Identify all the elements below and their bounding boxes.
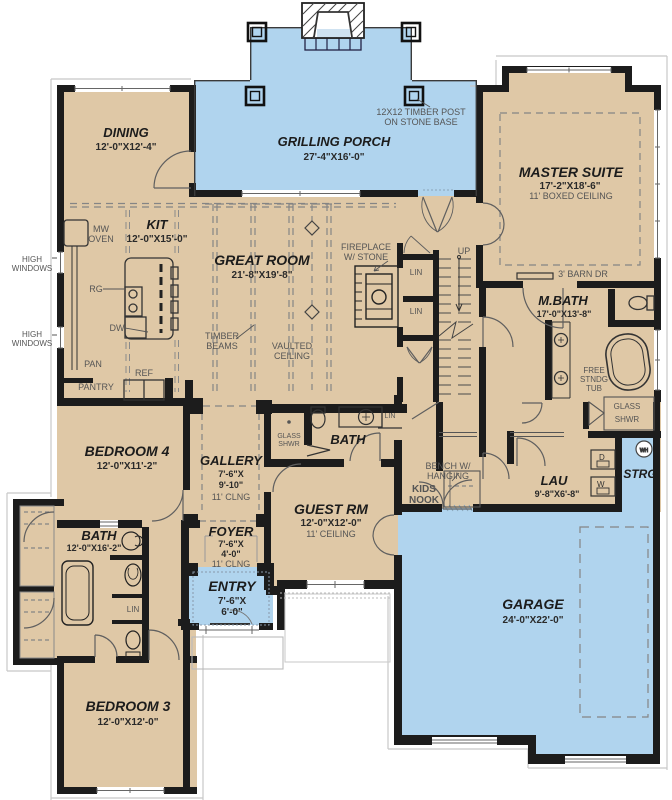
svg-text:GRILLING PORCH: GRILLING PORCH — [278, 134, 391, 149]
svg-text:17'-0"X13'-8": 17'-0"X13'-8" — [537, 309, 592, 319]
svg-text:DINING: DINING — [103, 125, 149, 140]
svg-text:ENTRY: ENTRY — [208, 578, 257, 594]
svg-text:3' BARN DR: 3' BARN DR — [558, 269, 608, 279]
svg-text:12'-0"X12'-0": 12'-0"X12'-0" — [301, 518, 362, 529]
svg-text:GARAGE: GARAGE — [502, 596, 564, 612]
svg-text:TIMBER: TIMBER — [205, 331, 240, 341]
svg-text:BATH: BATH — [81, 528, 117, 543]
svg-text:W/ STONE: W/ STONE — [344, 252, 388, 262]
svg-text:DW: DW — [110, 323, 125, 333]
svg-text:LAU: LAU — [541, 473, 568, 488]
svg-text:VAULTED: VAULTED — [272, 341, 313, 351]
svg-text:HIGH: HIGH — [22, 330, 42, 339]
svg-text:11' CLNG: 11' CLNG — [212, 492, 251, 502]
svg-text:LIN: LIN — [410, 307, 423, 316]
svg-text:PANTRY: PANTRY — [78, 382, 114, 392]
svg-text:STRG: STRG — [623, 467, 656, 481]
svg-text:FIREPLACE: FIREPLACE — [341, 242, 391, 252]
svg-text:24'-0"X22'-0": 24'-0"X22'-0" — [503, 615, 564, 626]
svg-text:GREAT ROOM: GREAT ROOM — [214, 252, 310, 268]
svg-text:OVEN: OVEN — [88, 234, 114, 244]
svg-text:MASTER SUITE: MASTER SUITE — [519, 164, 624, 180]
svg-text:21'-8"X19'-8": 21'-8"X19'-8" — [232, 270, 293, 281]
svg-text:9'-8"X6'-8": 9'-8"X6'-8" — [535, 489, 580, 499]
svg-text:7'-6"X: 7'-6"X — [218, 539, 243, 549]
svg-text:12'-0"X12'-0": 12'-0"X12'-0" — [98, 717, 159, 728]
svg-text:PAN: PAN — [84, 359, 102, 369]
svg-text:LIN: LIN — [385, 413, 396, 420]
svg-text:27'-4"X16'-0": 27'-4"X16'-0" — [304, 152, 365, 163]
svg-text:FOYER: FOYER — [209, 524, 254, 539]
svg-text:SHWR: SHWR — [278, 441, 299, 448]
svg-text:LIN: LIN — [410, 268, 423, 277]
svg-text:GLASS: GLASS — [614, 402, 641, 411]
svg-text:UP: UP — [458, 246, 471, 256]
svg-text:BATH: BATH — [330, 432, 366, 447]
svg-text:9'-10": 9'-10" — [219, 480, 243, 490]
svg-text:12'-0"X16'-2": 12'-0"X16'-2" — [67, 543, 122, 553]
svg-text:TUB: TUB — [586, 384, 602, 393]
svg-text:12X12 TIMBER POST: 12X12 TIMBER POST — [376, 107, 466, 117]
svg-text:6'-0": 6'-0" — [221, 607, 243, 618]
svg-text:HIGH: HIGH — [22, 255, 42, 264]
svg-text:11' BOXED CEILING: 11' BOXED CEILING — [529, 191, 613, 201]
svg-text:11' CLNG: 11' CLNG — [212, 559, 251, 569]
svg-text:KIDS: KIDS — [412, 484, 436, 495]
svg-text:RG: RG — [89, 284, 103, 294]
svg-text:7'-6"X: 7'-6"X — [218, 596, 247, 607]
svg-text:GLASS: GLASS — [277, 433, 301, 440]
svg-text:7'-6"X: 7'-6"X — [218, 469, 243, 479]
svg-text:GUEST RM: GUEST RM — [294, 501, 368, 517]
svg-text:WH: WH — [640, 448, 649, 454]
svg-text:D: D — [599, 453, 605, 462]
svg-text:12'-0"X11'-2": 12'-0"X11'-2" — [97, 461, 158, 472]
svg-text:12'-0"X12'-4": 12'-0"X12'-4" — [96, 142, 157, 153]
svg-text:12'-0"X15'-0": 12'-0"X15'-0" — [127, 234, 188, 245]
svg-text:LIN: LIN — [127, 605, 140, 614]
svg-text:11' CEILING: 11' CEILING — [306, 529, 356, 539]
svg-text:BEDROOM 4: BEDROOM 4 — [85, 443, 170, 459]
svg-text:BEDROOM 3: BEDROOM 3 — [86, 698, 171, 714]
svg-text:CEILING: CEILING — [274, 351, 310, 361]
svg-text:WINDOWS: WINDOWS — [12, 264, 52, 273]
svg-text:HANGING: HANGING — [427, 471, 469, 481]
svg-text:SHWR: SHWR — [615, 415, 640, 424]
svg-text:M.BATH: M.BATH — [538, 293, 588, 308]
svg-text:KIT: KIT — [147, 217, 169, 232]
svg-text:WINDOWS: WINDOWS — [12, 339, 52, 348]
svg-text:GALLERY: GALLERY — [200, 453, 263, 468]
svg-text:NOOK: NOOK — [409, 495, 440, 506]
svg-text:MW: MW — [93, 224, 109, 234]
svg-text:BEAMS: BEAMS — [206, 341, 238, 351]
svg-text:W: W — [597, 480, 605, 489]
svg-text:REF: REF — [135, 368, 154, 378]
svg-text:STNDG: STNDG — [580, 375, 608, 384]
svg-text:4'-0": 4'-0" — [221, 549, 240, 559]
svg-text:ON STONE BASE: ON STONE BASE — [384, 117, 457, 127]
svg-text:FREE: FREE — [583, 366, 604, 375]
svg-text:BENCH W/: BENCH W/ — [426, 461, 471, 471]
